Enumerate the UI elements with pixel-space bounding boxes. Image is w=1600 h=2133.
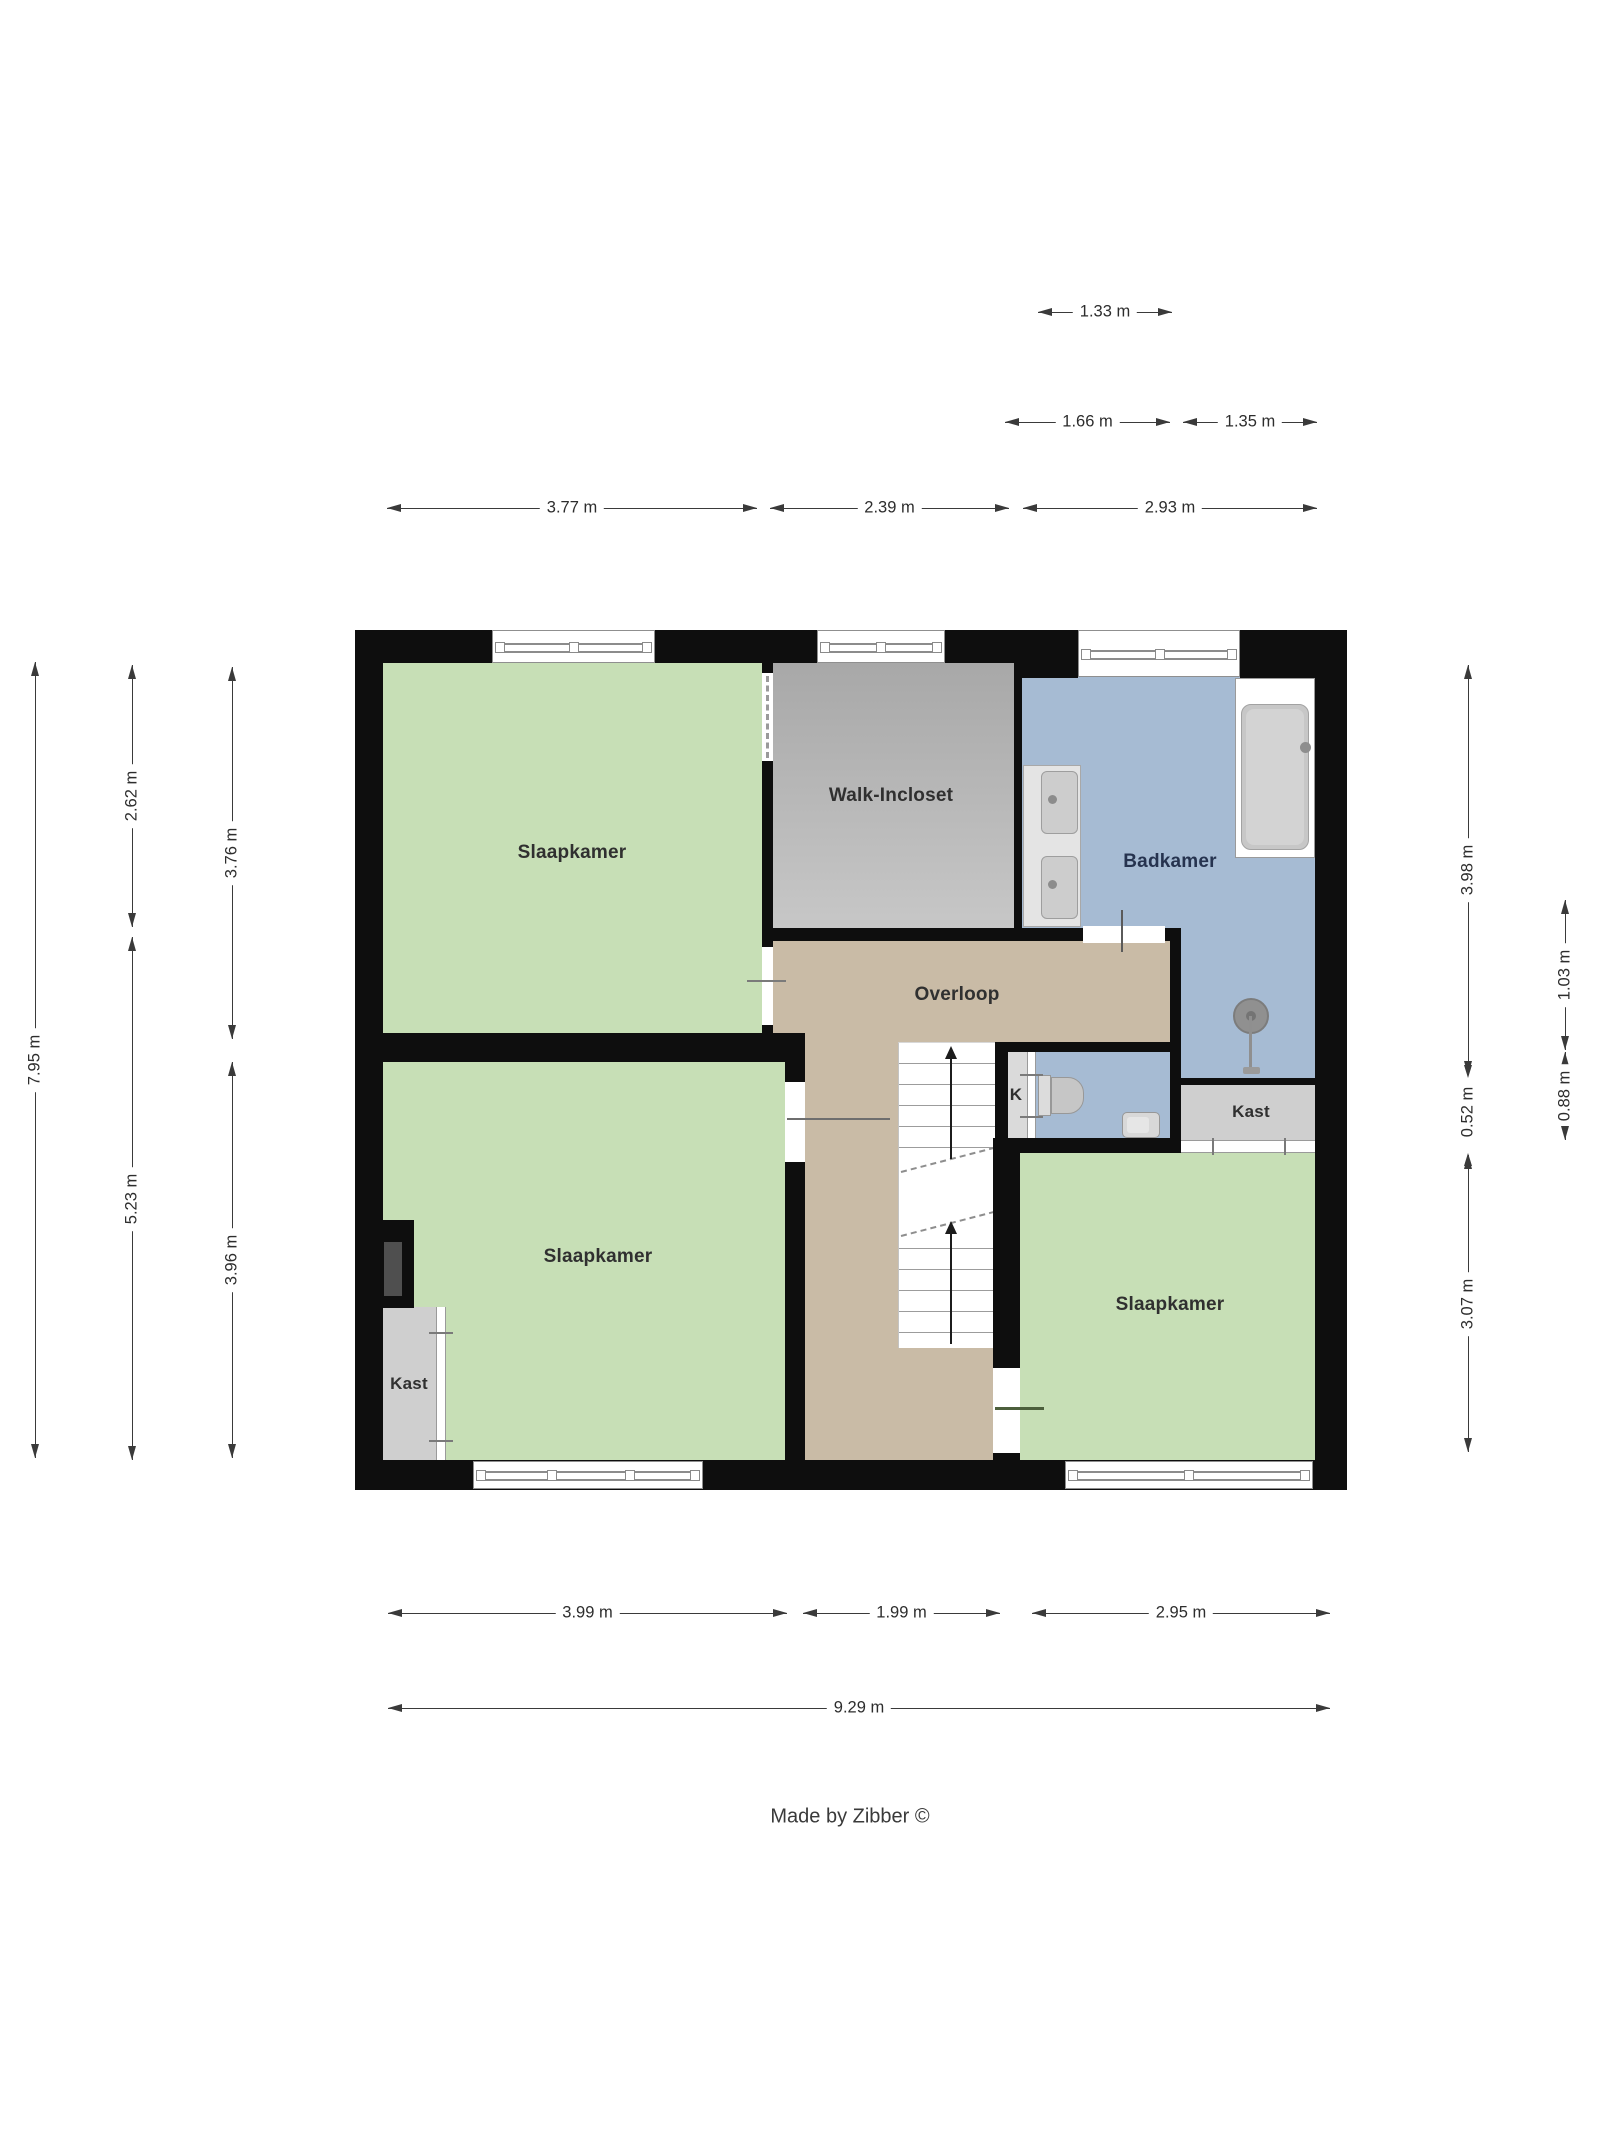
label-slaapkamer-bottomright: Slaapkamer — [1116, 1294, 1225, 1316]
staircase-lower-treads — [899, 1228, 995, 1347]
stairs-up-arrow-icon-2 — [945, 1221, 957, 1234]
dimension-label: 3.07 m — [1459, 1271, 1478, 1335]
stairs-up-arrow-line-2 — [950, 1233, 952, 1344]
door-toilet-tick-1 — [1020, 1074, 1043, 1076]
label-kast-right: Kast — [1232, 1102, 1270, 1122]
label-toilet-k: K — [1010, 1085, 1022, 1105]
label-walk-incloset: Walk-Incloset — [829, 785, 953, 807]
toilet-tank — [1038, 1075, 1051, 1116]
dimension-1-03: 1.03 m — [1565, 900, 1566, 1050]
dimension-label: 0.88 m — [1556, 1064, 1575, 1128]
window-top-badkamer — [1078, 630, 1240, 677]
wall-shower-kast — [1181, 1078, 1315, 1085]
dimension-3-98: 3.98 m — [1468, 665, 1469, 1075]
wall-stairs-toilet — [995, 1042, 1008, 1148]
washbasin-bowl-2 — [1041, 856, 1078, 919]
window-pane-divider — [690, 1470, 700, 1481]
window-pane-divider — [1300, 1470, 1310, 1481]
window-pane-divider — [876, 642, 886, 653]
bathtub-basin-inner — [1246, 709, 1304, 845]
dimension-3-96: 3.96 m — [232, 1062, 233, 1458]
window-pane-divider — [1068, 1470, 1078, 1481]
dimension-label: 5.23 m — [123, 1166, 142, 1230]
door-bedroomBL-corridor — [785, 1082, 805, 1162]
credit-text: Made by Zibber © — [770, 1806, 929, 1829]
wall-toilet-top — [995, 1042, 1181, 1052]
wall-shower-left — [1170, 928, 1181, 1140]
chimney-nook-inner — [384, 1242, 402, 1296]
window-glass — [477, 1471, 699, 1481]
wall-top-bath-patch-left — [1014, 663, 1078, 678]
dimension-label: 1.66 m — [1055, 413, 1119, 432]
dimension-2-39: 2.39 m — [770, 508, 1009, 509]
dimension-label: 3.99 m — [555, 1604, 619, 1623]
window-top-bedroomTL — [492, 630, 655, 663]
window-top-walkin — [817, 630, 945, 663]
dimension-label: 1.35 m — [1218, 413, 1282, 432]
label-badkamer: Badkamer — [1123, 851, 1216, 873]
dimension-1-66: 1.66 m — [1005, 422, 1170, 423]
window-pane-divider — [625, 1470, 635, 1481]
dimension-3-99: 3.99 m — [388, 1613, 787, 1614]
stairs-up-arrow-line-1 — [950, 1057, 952, 1159]
dimension-label: 3.98 m — [1459, 838, 1478, 902]
window-pane-divider — [476, 1470, 486, 1481]
dimension-1-99: 1.99 m — [803, 1613, 1000, 1614]
dimension-2-93: 2.93 m — [1023, 508, 1317, 509]
door-kast-left-tick-2 — [429, 1440, 453, 1442]
stairs-up-arrow-icon-1 — [945, 1046, 957, 1059]
door-bedroomTL-tick — [747, 980, 786, 982]
door-kast-right-tick-1 — [1212, 1138, 1214, 1155]
door-kast-right-tick-2 — [1284, 1138, 1286, 1155]
door-bedroomBL-leaf — [787, 1118, 890, 1120]
wall-outer-left — [355, 630, 383, 1490]
window-bottom-bedroomBL — [473, 1461, 703, 1489]
window-pane-divider — [1184, 1470, 1194, 1481]
wall-top-bath-patch-right — [1240, 663, 1315, 678]
wall-toilet-bottom — [993, 1138, 1181, 1153]
dimension-label: 3.96 m — [223, 1228, 242, 1292]
opening-dashed-line — [766, 676, 769, 758]
window-pane-divider — [1155, 649, 1165, 660]
dimension-label: 2.62 m — [123, 764, 142, 828]
dimension-3-07: 3.07 m — [1468, 1155, 1469, 1452]
shower-stem — [1249, 1016, 1252, 1070]
dimension-label: 1.33 m — [1073, 303, 1137, 322]
door-badkamer-overloop — [1083, 926, 1165, 943]
dimension-1-33: 1.33 m — [1038, 312, 1172, 313]
dimension-7-95: 7.95 m — [35, 662, 36, 1458]
window-pane-divider — [1081, 649, 1091, 660]
washbasin-faucet-icon-1 — [1048, 795, 1057, 804]
dimension-0-88: 0.88 m — [1565, 1052, 1566, 1140]
label-slaapkamer-bottomleft: Slaapkamer — [544, 1246, 653, 1268]
dimension-label: 1.03 m — [1556, 943, 1575, 1007]
washbasin-bowl-1 — [1041, 771, 1078, 834]
window-pane-divider — [569, 642, 579, 653]
dimension-label: 3.77 m — [540, 499, 604, 518]
dimension-label: 3.76 m — [223, 821, 242, 885]
dimension-label: 9.29 m — [827, 1699, 891, 1718]
dimension-3-77: 3.77 m — [387, 508, 757, 509]
dimension-0-52-label: 0.52 m — [1459, 1081, 1478, 1143]
dimension-label: 2.39 m — [857, 499, 921, 518]
window-pane-divider — [932, 642, 942, 653]
wall-walkin-badkamer — [1014, 663, 1022, 928]
dimension-3-76: 3.76 m — [232, 667, 233, 1039]
door-bedroomTL-overloop — [762, 947, 773, 1025]
dimension-0-52-stub-top — [1468, 1026, 1469, 1066]
dimension-2-95: 2.95 m — [1032, 1613, 1330, 1614]
door-toilet-frame — [1027, 1052, 1036, 1138]
floorplan-canvas: Slaapkamer Walk-Incloset Badkamer Overlo… — [0, 0, 1600, 2133]
door-kast-left — [436, 1307, 446, 1460]
door-bedroomBR-leaf — [995, 1407, 1044, 1410]
dimension-5-23: 5.23 m — [132, 937, 133, 1460]
label-slaapkamer-topleft: Slaapkamer — [518, 842, 627, 864]
dimension-1-35: 1.35 m — [1183, 422, 1317, 423]
window-pane-divider — [547, 1470, 557, 1481]
dimension-label: 7.95 m — [26, 1028, 45, 1092]
bathtub-faucet-icon — [1300, 742, 1311, 753]
dimension-label: 2.95 m — [1149, 1604, 1213, 1623]
door-bedroomBR-corridor — [993, 1368, 1020, 1453]
door-badkamer-leaf — [1121, 910, 1123, 952]
dimension-2-62: 2.62 m — [132, 665, 133, 927]
door-kast-left-tick-1 — [429, 1332, 453, 1334]
window-pane-divider — [820, 642, 830, 653]
wall-bedrooms-left-divider — [383, 1033, 805, 1062]
dimension-9-29: 9.29 m — [388, 1708, 1330, 1709]
wall-outer-right — [1315, 630, 1347, 1490]
toilet-bowl — [1051, 1077, 1084, 1114]
door-kast-right — [1181, 1140, 1315, 1153]
label-kast-left: Kast — [390, 1374, 428, 1394]
window-pane-divider — [495, 642, 505, 653]
door-toilet-tick-2 — [1020, 1116, 1043, 1118]
window-pane-divider — [642, 642, 652, 653]
dimension-label: 1.99 m — [869, 1604, 933, 1623]
window-bottom-bedroomBR — [1065, 1461, 1313, 1489]
window-pane-divider — [1227, 649, 1237, 660]
dimension-label: 2.93 m — [1138, 499, 1202, 518]
shower-base — [1243, 1067, 1260, 1074]
washbasin-faucet-icon-2 — [1048, 880, 1057, 889]
label-overloop: Overloop — [914, 984, 999, 1006]
dimension-0-52-arrow-top — [1464, 1065, 1472, 1078]
toilet-sink-inner — [1127, 1117, 1149, 1133]
staircase-upper-treads — [899, 1043, 995, 1161]
